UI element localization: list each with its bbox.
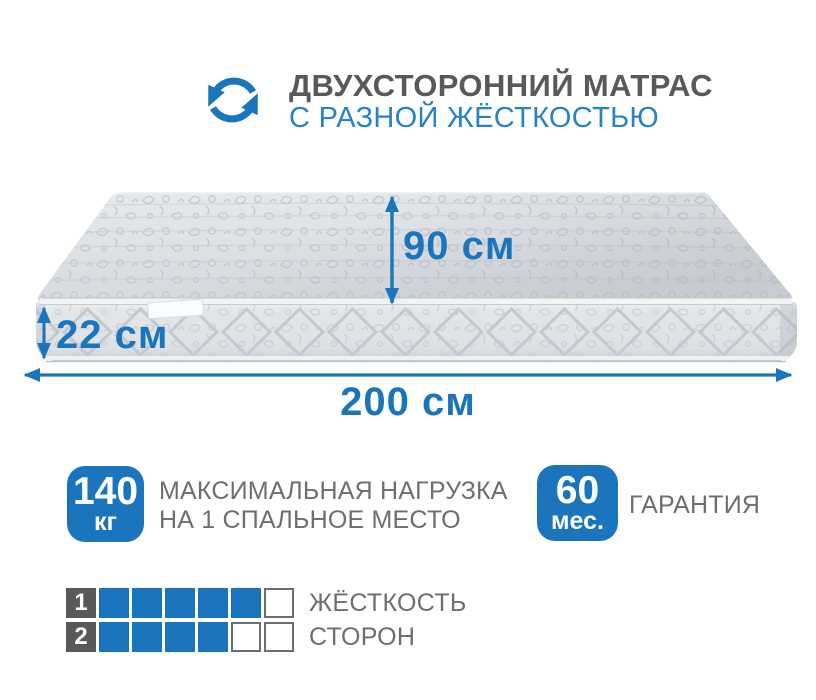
firmness-square-empty <box>264 622 294 652</box>
firmness-square-filled <box>99 588 129 618</box>
firmness-row-2-label: СТОРОН <box>309 623 415 652</box>
warranty-badge: 60 мес. <box>537 465 618 541</box>
mattress-infographic: ДВУХСТОРОННИЙ МАТРАС С РАЗНОЙ ЖЁСТКОСТЬЮ… <box>0 0 816 700</box>
max-load-badge: 140 кг <box>67 466 144 542</box>
firmness-row-1-squares <box>99 588 294 618</box>
max-load-line1: МАКСИМАЛЬНАЯ НАГРУЗКА <box>159 477 508 506</box>
firmness-square-filled <box>165 622 195 652</box>
flip-arrows-icon <box>200 60 266 138</box>
firmness-row-2: 2 СТОРОН <box>66 622 467 652</box>
depth-dimension-label: 90 см <box>403 224 515 269</box>
max-load-unit: кг <box>94 510 117 534</box>
firmness-square-filled <box>132 588 162 618</box>
firmness-square-filled <box>99 622 129 652</box>
firmness-square-filled <box>231 588 261 618</box>
header-titles: ДВУХСТОРОННИЙ МАТРАС С РАЗНОЙ ЖЁСТКОСТЬЮ <box>289 69 713 135</box>
width-dimension-label: 200 см <box>0 380 816 425</box>
warranty-unit: мес. <box>551 509 604 533</box>
max-load-value: 140 <box>73 474 138 510</box>
page-title: ДВУХСТОРОННИЙ МАТРАС <box>289 69 713 102</box>
firmness-square-filled <box>198 588 228 618</box>
firmness-row-1-label: ЖЁСТКОСТЬ <box>309 589 467 618</box>
page-subtitle: С РАЗНОЙ ЖЁСТКОСТЬЮ <box>289 102 713 135</box>
firmness-row-1: 1 ЖЁСТКОСТЬ <box>66 588 467 618</box>
firmness-square-filled <box>198 622 228 652</box>
firmness-row-1-number: 1 <box>66 588 96 618</box>
warranty-value: 60 <box>556 473 599 509</box>
firmness-scale: 1 ЖЁСТКОСТЬ 2 СТОРОН <box>66 588 467 656</box>
warranty-description: ГАРАНТИЯ <box>629 491 760 520</box>
firmness-square-empty <box>264 588 294 618</box>
firmness-row-2-number: 2 <box>66 622 96 652</box>
firmness-square-empty <box>231 622 261 652</box>
firmness-square-filled <box>132 622 162 652</box>
height-dimension-label: 22 см <box>56 313 168 358</box>
max-load-line2: НА 1 СПАЛЬНОЕ МЕСТО <box>159 506 508 535</box>
max-load-description: МАКСИМАЛЬНАЯ НАГРУЗКА НА 1 СПАЛЬНОЕ МЕСТ… <box>159 477 508 535</box>
firmness-square-filled <box>165 588 195 618</box>
firmness-row-2-squares <box>99 622 294 652</box>
